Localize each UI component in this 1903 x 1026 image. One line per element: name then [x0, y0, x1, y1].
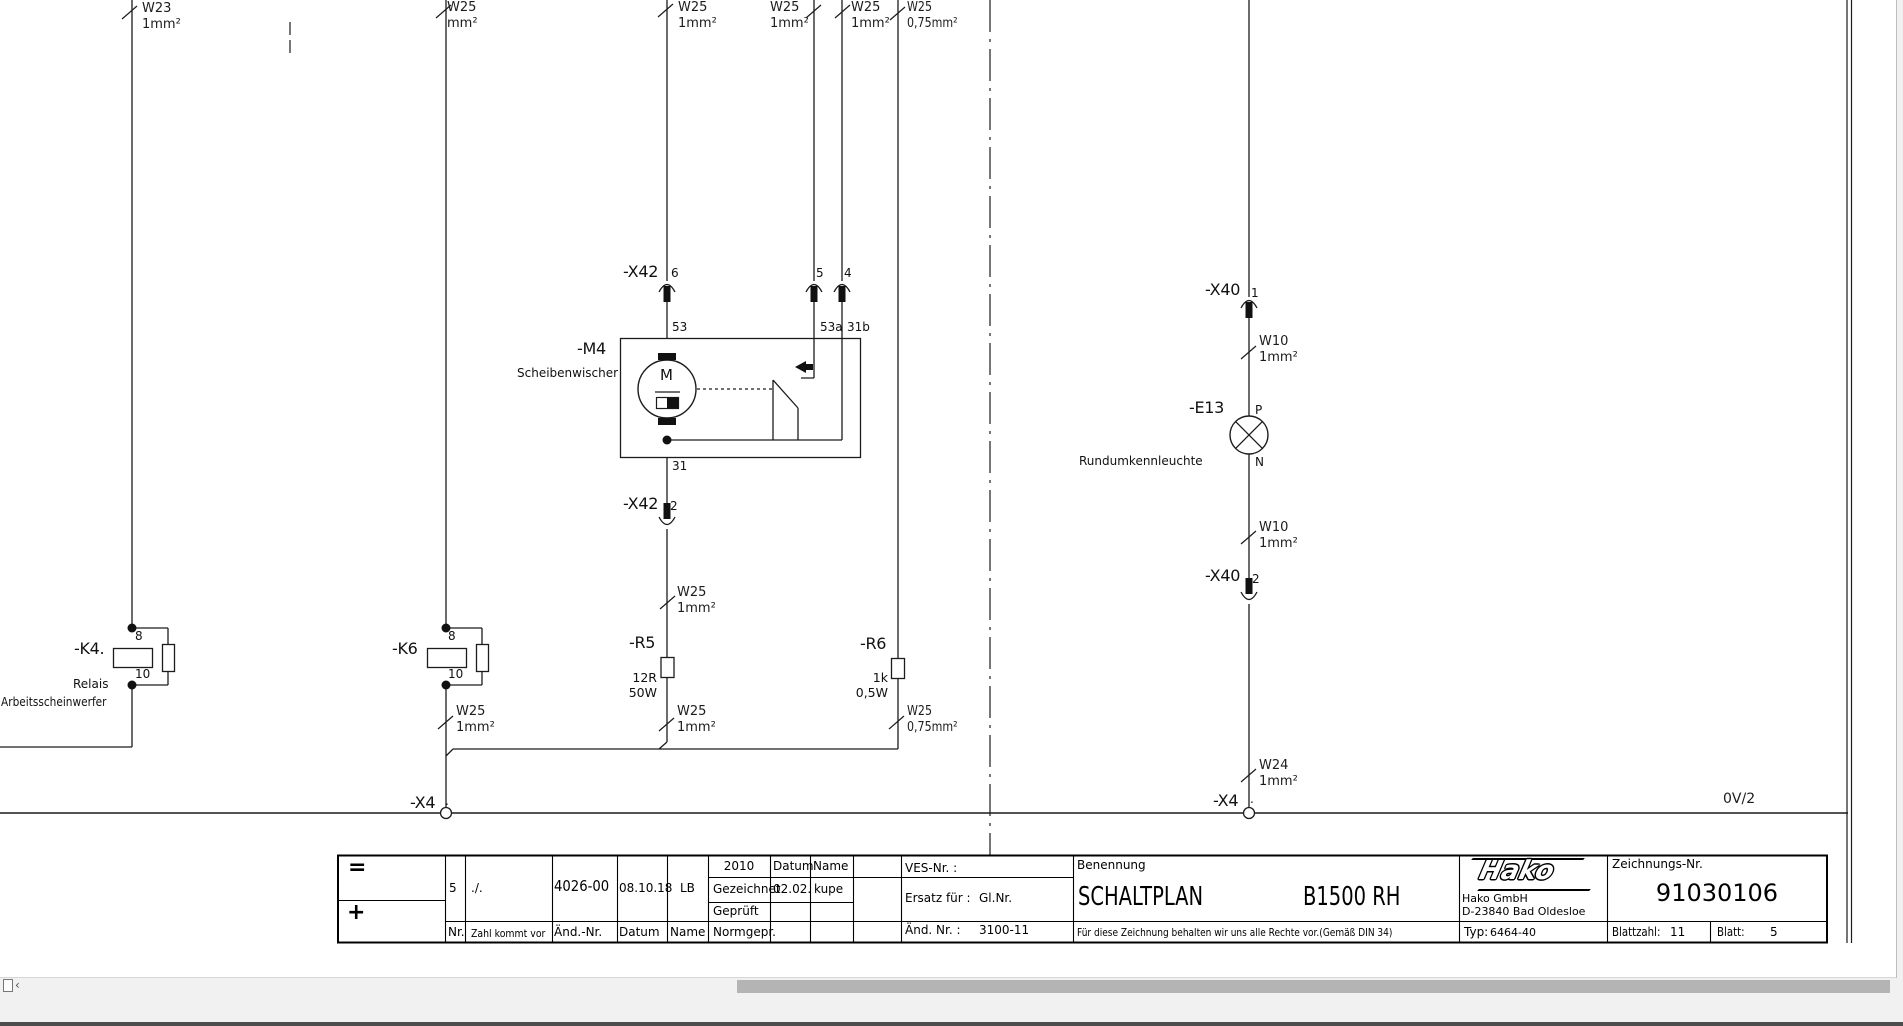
pin-k4-8: 8	[135, 630, 143, 643]
appr-year: 2010	[708, 859, 770, 873]
bus-label-0v2: 0V/2	[1723, 791, 1755, 807]
appr-gezeichnet: Gezeichnet	[713, 882, 781, 896]
x4-right-ring	[1244, 808, 1255, 819]
rev-col-datum: Datum	[619, 925, 660, 939]
typ-label: Typ:	[1464, 925, 1488, 939]
wire-label-w23: W23 1mm²	[142, 1, 181, 33]
company-city: D-23840 Bad Oldesloe	[1462, 905, 1585, 919]
cable-ticks	[122, 4, 1256, 782]
desc-k4-2: Arbeitsscheinwerfer	[1, 695, 107, 709]
pin-k4-10: 10	[135, 668, 150, 681]
pin-k6-10: 10	[448, 668, 463, 681]
pin-4: 4	[844, 267, 852, 280]
titleblock-eq-symbol: =	[348, 861, 366, 875]
glnr-label: Gl.Nr.	[979, 891, 1012, 905]
aendnr-label: Änd. Nr. :	[905, 923, 961, 937]
wire-label-w25-a: W25 1mm²	[678, 0, 717, 32]
appr-col-name: Name	[813, 859, 848, 873]
wire-label-w25-d: W25 0,75mm²	[907, 0, 958, 32]
rev-aend-value: 4026-00	[554, 879, 609, 893]
rights-note: Für diese Zeichnung behalten wir uns all…	[1077, 926, 1392, 940]
ref-k6: -K6	[392, 640, 418, 657]
lamp-cross	[1236, 422, 1263, 449]
appr-geprueft: Geprüft	[713, 904, 759, 918]
pin-53a: 53a	[820, 321, 843, 334]
ref-r6: -R6	[860, 635, 886, 652]
ref-m4: -M4	[577, 340, 606, 357]
wire-label-w24: W24 1mm²	[1259, 758, 1298, 790]
wire-label-w25-k6: W25 1mm²	[456, 704, 495, 736]
pin-x4-right-dot: .	[1250, 793, 1254, 806]
typ-value: 6464-40	[1490, 926, 1536, 940]
pin-x40-1: 1	[1251, 287, 1259, 300]
rev-col-nr: Nr.	[448, 925, 465, 939]
pin-x40-2: 2	[1252, 573, 1260, 586]
motor-brush-fill	[667, 398, 679, 409]
benennung-label: Benennung	[1077, 858, 1146, 872]
appr-col-datum: Datum	[773, 859, 814, 873]
horizontal-scrollbar-thumb[interactable]	[737, 980, 1890, 993]
sidebar-toggle-button[interactable]: ‹	[3, 978, 29, 993]
wire-label-w25-feed: W25 mm²	[447, 0, 478, 32]
value-r5: 12R 50W	[597, 670, 657, 700]
pin-53: 53	[672, 321, 687, 334]
doc-title: SCHALTPLAN	[1078, 883, 1203, 911]
desc-e13: Rundumkennleuchte	[1079, 454, 1203, 468]
pin-31: 31	[672, 460, 687, 473]
pdf-viewer-page: W23 1mm² W25 mm² W25 1mm² W25 1mm² W25 1…	[0, 0, 1903, 1026]
motor-letter: M	[660, 368, 673, 382]
relay-symbols	[114, 645, 489, 672]
company-name: Hako GmbH	[1462, 892, 1528, 906]
aendnr-value: 3100-11	[979, 923, 1029, 937]
value-r6: 1k 0,5W	[828, 670, 888, 700]
rev-nr-value: 5	[449, 881, 457, 895]
wire-label-w25-c: W25 1mm²	[851, 0, 890, 32]
ref-x4-right: -X4	[1213, 792, 1238, 809]
hako-logo-text: Hako	[1477, 856, 1557, 886]
frame-right	[1847, 0, 1852, 943]
schematic-canvas	[0, 0, 1903, 977]
ersatz-label: Ersatz für :	[905, 891, 971, 905]
appr-gezeichnet-name: kupe	[814, 882, 843, 896]
blatt-value: 5	[1770, 925, 1778, 939]
viewer-toolbar: 300% − +	[0, 994, 1903, 1022]
bottom-edge-strip	[0, 1022, 1903, 1026]
appr-gezeichnet-datum: 02.02.	[773, 882, 811, 896]
pin-5: 5	[816, 267, 824, 280]
ref-x42-top: -X42	[623, 263, 658, 280]
horizontal-scrollbar[interactable]	[0, 977, 1903, 994]
pin-x4-left-dot: .	[445, 795, 449, 808]
ves-label: VES-Nr. :	[905, 861, 957, 875]
ref-x42-bot: -X42	[623, 495, 658, 512]
terminal-arcs	[659, 285, 1257, 600]
pin-x42-6: 6	[671, 267, 679, 280]
pin-x42-2: 2	[670, 500, 678, 513]
wire-label-w25-r6b: W25 0,75mm²	[907, 704, 958, 736]
ref-x4-left: -X4	[410, 794, 435, 811]
rev-zahl-value: ./.	[471, 881, 483, 895]
doc-model: B1500 RH	[1303, 883, 1400, 911]
park-arrow	[795, 361, 813, 373]
hako-logo: Hako	[1472, 858, 1590, 892]
wire-label-w10-a: W10 1mm²	[1259, 334, 1298, 366]
drawing-number: 91030106	[1607, 880, 1827, 906]
vertical-scrollbar[interactable]	[1896, 0, 1903, 978]
ref-x40-bot: -X40	[1205, 567, 1240, 584]
hako-logo-line-bottom	[1477, 889, 1591, 891]
ref-r5: -R5	[629, 634, 655, 651]
chevron-left-icon: ‹	[15, 979, 20, 992]
wire-label-w10-b: W10 1mm²	[1259, 520, 1298, 552]
pin-p: P	[1255, 404, 1262, 417]
r5-symbol	[661, 658, 674, 678]
motor-pad-bottom	[658, 418, 676, 425]
x4-left-ring	[441, 808, 452, 819]
motor-pad-top	[658, 353, 676, 360]
blattzahl-label: Blattzahl:	[1612, 925, 1660, 939]
pin-n: N	[1255, 456, 1264, 469]
ref-k4: -K4.	[74, 640, 104, 657]
rev-name-value: LB	[680, 881, 695, 895]
pin-31b: 31b	[847, 321, 870, 334]
desc-k4-1: Relais	[73, 677, 108, 691]
ref-e13: -E13	[1189, 399, 1224, 416]
rev-datum-value: 08.10.18	[619, 881, 672, 895]
rev-col-name: Name	[670, 925, 705, 939]
blattzahl-value: 11	[1670, 925, 1685, 939]
rev-col-aend: Änd.-Nr.	[554, 925, 602, 939]
wire-label-w25-b: W25 1mm²	[770, 0, 809, 32]
desc-m4: Scheibenwischer	[517, 366, 618, 380]
zeichnungsnr-label: Zeichnungs-Nr.	[1612, 857, 1703, 871]
appr-normgepr: Normgepr.	[713, 925, 776, 939]
r6-symbol	[892, 659, 905, 679]
sidebar-page-icon	[3, 979, 13, 992]
pin-k6-8: 8	[448, 630, 456, 643]
titleblock-plus-symbol: +	[347, 906, 365, 920]
blatt-label: Blatt:	[1717, 925, 1745, 939]
rev-col-zahl: Zahl kommt vor	[471, 927, 545, 941]
ref-x40-top: -X40	[1205, 281, 1240, 298]
wire-label-w25-r5b: W25 1mm²	[677, 704, 716, 736]
wire-label-w25-r5a: W25 1mm²	[677, 585, 716, 617]
